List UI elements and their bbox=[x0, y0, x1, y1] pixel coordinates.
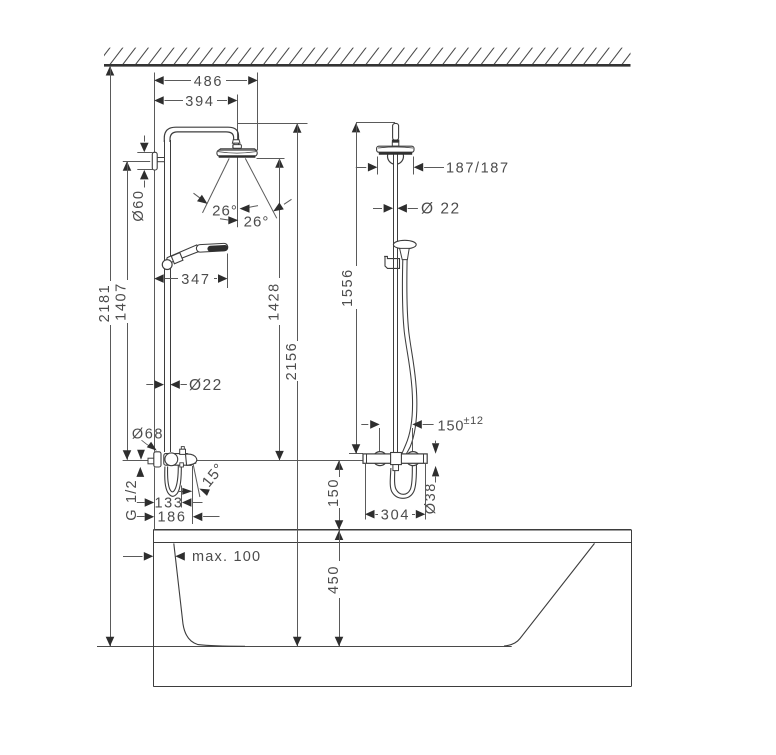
svg-text:186: 186 bbox=[158, 510, 187, 526]
svg-text:394: 394 bbox=[185, 94, 215, 110]
svg-text:304: 304 bbox=[381, 507, 411, 523]
svg-text:1556: 1556 bbox=[340, 268, 356, 307]
svg-text:2156: 2156 bbox=[284, 342, 300, 381]
svg-text:Ø60: Ø60 bbox=[131, 189, 147, 221]
svg-text:450: 450 bbox=[326, 565, 342, 594]
svg-text:Ø22: Ø22 bbox=[189, 377, 223, 394]
svg-text:1407: 1407 bbox=[114, 282, 130, 321]
svg-text:2181: 2181 bbox=[97, 284, 113, 323]
svg-text:150: 150 bbox=[326, 478, 342, 507]
svg-text:486: 486 bbox=[194, 74, 224, 90]
svg-text:Ø 22: Ø 22 bbox=[421, 201, 461, 218]
svg-text:26°: 26° bbox=[244, 213, 270, 230]
svg-text:150: 150 bbox=[438, 419, 465, 435]
svg-text:G 1/2: G 1/2 bbox=[124, 479, 140, 520]
svg-text:347: 347 bbox=[181, 272, 211, 288]
svg-text:±12: ±12 bbox=[464, 415, 484, 427]
svg-text:187/187: 187/187 bbox=[446, 160, 510, 176]
svg-text:26°: 26° bbox=[212, 202, 238, 219]
svg-text:Ø68: Ø68 bbox=[132, 427, 164, 443]
svg-text:1428: 1428 bbox=[267, 282, 283, 321]
svg-text:max. 100: max. 100 bbox=[192, 549, 261, 565]
